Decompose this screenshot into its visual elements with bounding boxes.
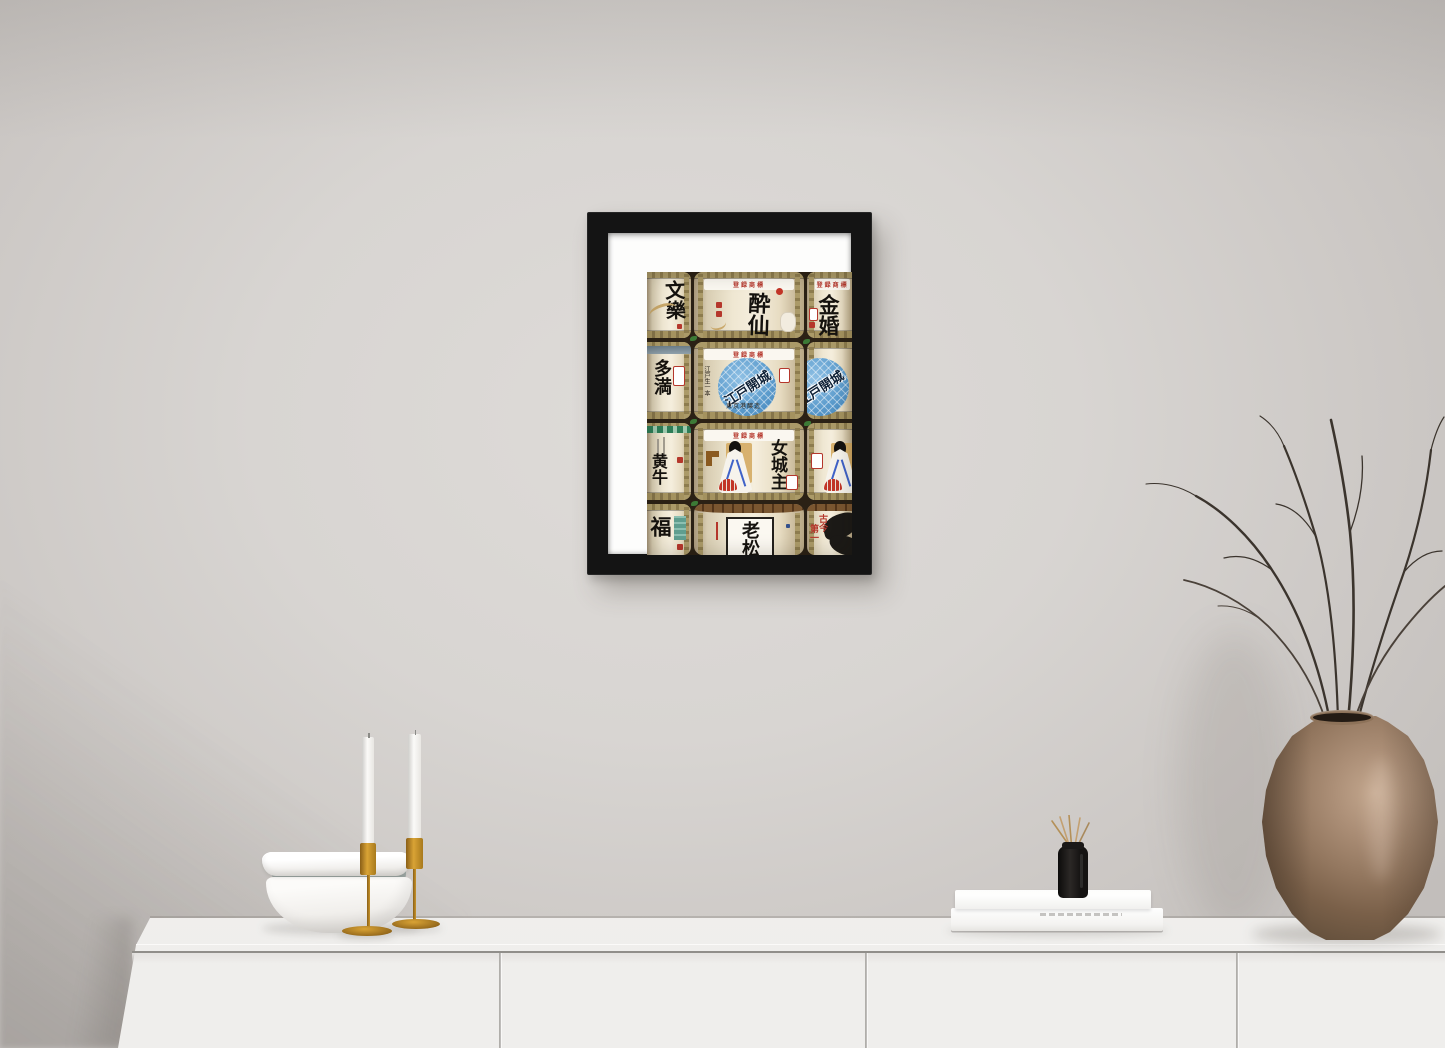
red-seal <box>677 324 682 329</box>
trademark-text: 登録商標 <box>817 280 849 289</box>
sake-barrel: 黄牛 <box>647 423 691 500</box>
teal-label <box>674 516 686 540</box>
red-dot <box>776 288 783 295</box>
red-seal-stamp <box>809 308 818 321</box>
candlestick-base <box>342 926 392 936</box>
book-bottom <box>951 908 1163 931</box>
barrel-calligraphy: 金婚 <box>817 294 838 336</box>
princess-illustration <box>823 441 852 493</box>
sake-barrel: 登録商標 酔仙 <box>694 272 804 338</box>
blue-brewery-logo: 江戸開城 <box>807 358 849 416</box>
picture-frame: 文樂 登録商標 酔仙 <box>587 212 872 575</box>
leaf-accent <box>690 336 697 341</box>
door-gap <box>499 953 501 1048</box>
barrel-calligraphy: 女城主 <box>769 439 786 490</box>
red-calligraphy: 第一 <box>809 524 818 542</box>
vase-mouth <box>1310 710 1374 725</box>
red-seal <box>809 322 815 328</box>
candlestick-base <box>392 919 440 929</box>
red-seal-stamp <box>786 475 798 490</box>
sake-barrel: 文樂 <box>647 272 691 338</box>
rice-sack <box>780 312 796 332</box>
candlestick-stem <box>367 875 370 929</box>
candlestick-stem <box>413 869 416 922</box>
groove-shadow <box>132 953 1445 964</box>
sake-barrel: 福 <box>647 504 691 555</box>
book-spine-marking <box>1040 913 1122 916</box>
counter-front-edge <box>136 944 1445 945</box>
interior-scene: 文樂 登録商標 酔仙 <box>0 0 1445 1048</box>
side-note-text: 江戸生一本 <box>703 366 709 396</box>
tan-sketch <box>709 316 727 332</box>
logo-calligraphy: 江戸開城 <box>807 365 847 409</box>
door-gap <box>1236 953 1238 1048</box>
blue-mark <box>786 524 790 528</box>
decorative-vase <box>1262 716 1438 942</box>
book-top <box>955 890 1151 909</box>
sake-barrel: 登録商標 江戸開城 江戸生一本 東京港醸造 <box>694 342 804 419</box>
wall-top-shade <box>0 0 1445 140</box>
trademark-text: 登録商標 <box>733 280 765 289</box>
gold-ribbon <box>706 451 712 466</box>
barrel-lid-trim <box>694 504 804 513</box>
barrel-lid-trim <box>807 504 852 511</box>
stacked-bowl-top <box>262 852 410 876</box>
dry-branches <box>1100 412 1445 742</box>
sake-barrel: 登録商標 女城主 <box>694 423 804 500</box>
barrel-calligraphy: 多満 <box>653 359 671 395</box>
sake-barrel <box>807 423 852 500</box>
candle-holder-cup <box>406 838 423 869</box>
sake-barrel: 江戸開城 <box>807 342 852 419</box>
barrel-calligraphy: 黄牛 <box>649 453 665 485</box>
vase-highlight <box>1368 758 1394 880</box>
sake-barrel: 古今 第一 <box>807 504 852 555</box>
white-label: 老松 <box>726 517 774 555</box>
sake-barrel: 多満 <box>647 342 691 419</box>
sake-barrels-art-print: 文樂 登録商標 酔仙 <box>647 272 852 555</box>
red-seal-stamp <box>673 366 685 386</box>
trademark-text: 登録商標 <box>733 431 765 440</box>
red-seal <box>677 457 683 463</box>
barrel-calligraphy: 酔仙 <box>745 292 769 337</box>
red-seal <box>716 302 722 308</box>
frame-mat: 文樂 登録商標 酔仙 <box>608 233 851 554</box>
door-gap <box>865 953 867 1048</box>
black-brush-shape <box>828 533 852 555</box>
brewery-name-text: 東京港醸造 <box>726 401 761 410</box>
red-seal-stamp <box>811 453 823 469</box>
taper-candle <box>408 734 421 838</box>
candle-holder-cup <box>360 843 376 875</box>
red-seal <box>716 311 722 317</box>
taper-candle <box>362 737 374 843</box>
red-script-line <box>716 522 718 540</box>
mountain-band <box>647 346 691 354</box>
white-tag <box>779 368 790 383</box>
barrel-calligraphy: 福 <box>649 516 670 537</box>
red-seal <box>677 544 683 550</box>
red-calligraphy: 古今 <box>818 514 827 532</box>
sake-barrel: 老松 <box>694 504 804 555</box>
reed-diffuser-bottle <box>1058 846 1088 898</box>
sake-barrel: 登録商標 金婚 <box>807 272 852 338</box>
princess-illustration <box>718 441 752 493</box>
trademark-band: 登録商標 <box>815 279 850 290</box>
barrel-calligraphy: 老松 <box>741 521 759 555</box>
green-pattern-band <box>647 426 691 433</box>
